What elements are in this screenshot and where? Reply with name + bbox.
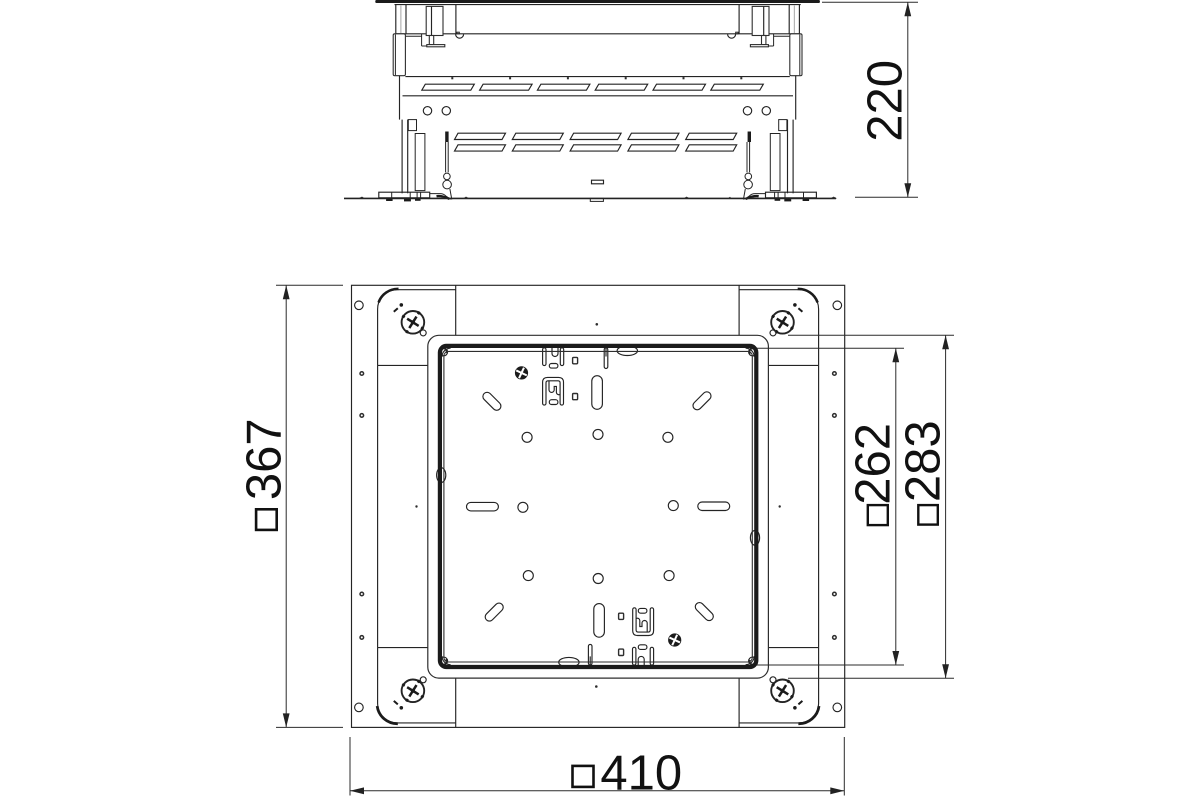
svg-text:283: 283 [896, 420, 950, 502]
svg-text:410: 410 [600, 746, 682, 800]
svg-text:262: 262 [847, 423, 901, 505]
svg-text:367: 367 [238, 418, 292, 500]
svg-text:220: 220 [858, 60, 912, 142]
